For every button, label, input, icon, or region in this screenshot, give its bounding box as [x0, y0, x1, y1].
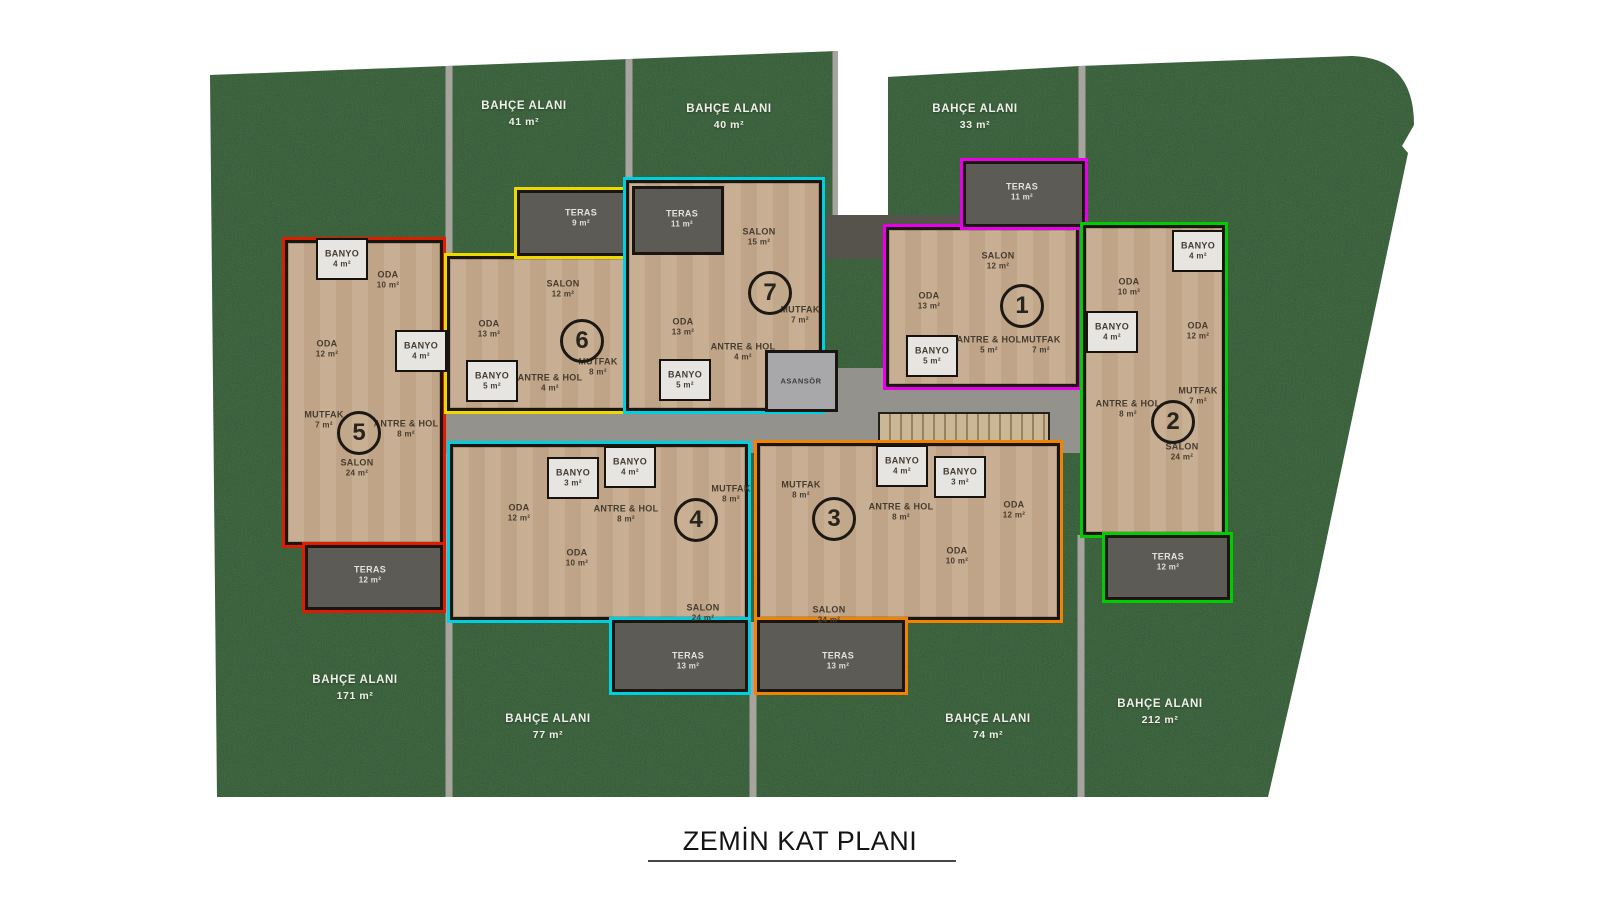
- unit-5-room-banyo: BANYO4 m²: [404, 340, 438, 361]
- unit-6-room-banyo: BANYO5 m²: [475, 370, 509, 391]
- unit-4-room-salon: SALON24 m²: [687, 602, 720, 623]
- unit-2-room-oda: ODA10 m²: [1118, 276, 1140, 297]
- elevator-label: ASANSÖR: [780, 377, 821, 386]
- unit-7-room-antre-hol: ANTRE & HOL4 m²: [711, 341, 776, 362]
- unit-5-room-salon: SALON24 m²: [341, 457, 374, 478]
- unit-2-room-banyo: BANYO4 m²: [1095, 321, 1129, 342]
- unit-3-room-salon: SALON24 m²: [813, 604, 846, 625]
- unit-6-room-antre-hol: ANTRE & HOL4 m²: [518, 372, 583, 393]
- unit-4-room-antre-hol: ANTRE & HOL8 m²: [594, 503, 659, 524]
- unit-7-room-banyo: BANYO5 m²: [668, 369, 702, 390]
- plan-title-underline: [648, 860, 956, 862]
- garden-label-33m: BAHÇE ALANI33 m²: [932, 102, 1017, 132]
- unit-1-room-salon: SALON12 m²: [982, 250, 1015, 271]
- unit-6-room-salon: SALON12 m²: [547, 278, 580, 299]
- plan-title: ZEMİN KAT PLANI: [630, 826, 970, 857]
- unit-5-room-antre-hol: ANTRE & HOL8 m²: [374, 418, 439, 439]
- unit-4-room-banyo: BANYO3 m²: [556, 467, 590, 488]
- unit-5-room-oda: ODA12 m²: [316, 338, 338, 359]
- unit-7-room-salon: SALON15 m²: [743, 226, 776, 247]
- parcel-gap: [838, 35, 888, 218]
- unit-5-terrace-label: TERAS12 m²: [354, 564, 386, 585]
- unit-3-room-banyo: BANYO4 m²: [885, 455, 919, 476]
- garden-label-77m: BAHÇE ALANI77 m²: [505, 712, 590, 742]
- unit-5: [285, 240, 443, 545]
- unit-1-number-badge: 1: [1000, 284, 1044, 328]
- unit-3-terrace-label: TERAS13 m²: [822, 650, 854, 671]
- unit-4-room-oda: ODA12 m²: [508, 502, 530, 523]
- unit-1-room-mutfak: MUTFAK7 m²: [1021, 334, 1060, 355]
- unit-1-room-banyo: BANYO5 m²: [915, 345, 949, 366]
- unit-4-room-banyo: BANYO4 m²: [613, 456, 647, 477]
- unit-5-number-badge: 5: [337, 411, 381, 455]
- unit-4-room-mutfak: MUTFAK8 m²: [711, 483, 750, 504]
- unit-7-number-badge: 7: [748, 271, 792, 315]
- unit-6-number-badge: 6: [560, 319, 604, 363]
- unit-1-room-oda: ODA13 m²: [918, 290, 940, 311]
- unit-7-room-oda: ODA13 m²: [672, 316, 694, 337]
- unit-4-room-oda: ODA10 m²: [566, 547, 588, 568]
- garden-label-171m: BAHÇE ALANI171 m²: [312, 673, 397, 703]
- unit-6-terrace-label: TERAS9 m²: [565, 207, 597, 228]
- unit-1-terrace-label: TERAS11 m²: [1006, 181, 1038, 202]
- unit-5-room-oda: ODA10 m²: [377, 269, 399, 290]
- unit-3-room-mutfak: MUTFAK8 m²: [781, 479, 820, 500]
- unit-3-room-oda: ODA10 m²: [946, 545, 968, 566]
- unit-1-room-antre-hol: ANTRE & HOL5 m²: [957, 334, 1022, 355]
- unit-2-number-badge: 2: [1151, 400, 1195, 444]
- unit-5-room-banyo: BANYO4 m²: [325, 248, 359, 269]
- unit-7-terrace-label: TERAS11 m²: [666, 208, 698, 229]
- unit-3-room-antre-hol: ANTRE & HOL8 m²: [869, 501, 934, 522]
- unit-3-room-banyo: BANYO3 m²: [943, 466, 977, 487]
- unit-3-room-oda: ODA12 m²: [1003, 499, 1025, 520]
- garden-label-212m: BAHÇE ALANI212 m²: [1117, 697, 1202, 727]
- unit-4-number-badge: 4: [674, 498, 718, 542]
- floor-plan-stage: ASANSÖR ZEMİN KAT PLANI TERAS11 m²SALON1…: [0, 0, 1600, 899]
- garden-label-40m: BAHÇE ALANI40 m²: [686, 102, 771, 132]
- unit-2-terrace-label: TERAS12 m²: [1152, 551, 1184, 572]
- garden-label-41m: BAHÇE ALANI41 m²: [481, 99, 566, 129]
- unit-2-room-oda: ODA12 m²: [1187, 320, 1209, 341]
- unit-4-terrace-label: TERAS13 m²: [672, 650, 704, 671]
- unit-2-room-salon: SALON24 m²: [1166, 441, 1199, 462]
- unit-2-room-banyo: BANYO4 m²: [1181, 240, 1215, 261]
- unit-3-number-badge: 3: [812, 497, 856, 541]
- garden-label-74m: BAHÇE ALANI74 m²: [945, 712, 1030, 742]
- unit-6-room-oda: ODA13 m²: [478, 318, 500, 339]
